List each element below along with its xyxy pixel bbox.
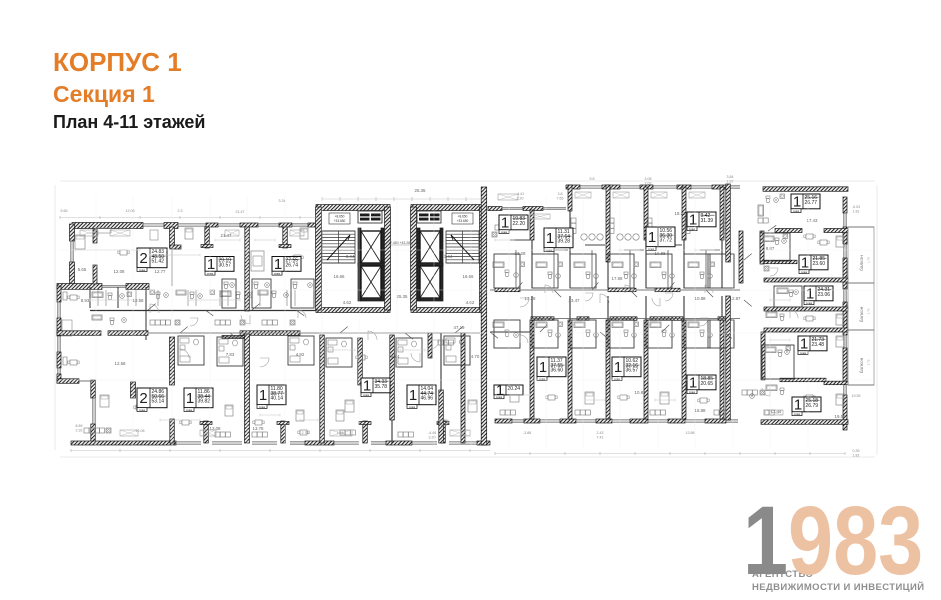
svg-text:балкон: балкон — [859, 306, 865, 322]
svg-text:22.20: 22.20 — [513, 221, 526, 227]
svg-text:9.84: 9.84 — [391, 354, 400, 359]
svg-text:15.88: 15.88 — [695, 408, 707, 413]
svg-text:этаж: этаж — [409, 405, 415, 409]
svg-text:8.93: 8.93 — [81, 298, 90, 303]
svg-text:балкон: балкон — [859, 255, 865, 271]
svg-text:-0.03: -0.03 — [852, 205, 860, 209]
svg-text:-4.48: -4.48 — [428, 431, 436, 435]
svg-text:этаж: этаж — [689, 390, 695, 394]
svg-text:23.60: 23.60 — [813, 261, 826, 267]
svg-text:1: 1 — [546, 230, 554, 247]
svg-text:10.82: 10.82 — [635, 390, 647, 395]
svg-text:+7.480 +43.280: +7.480 +43.280 — [388, 241, 412, 245]
svg-text:+8.650: +8.650 — [335, 215, 345, 219]
svg-text:этаж: этаж — [800, 351, 806, 355]
svg-text:этаж: этаж — [794, 412, 800, 416]
svg-text:37.72: 37.72 — [660, 238, 673, 244]
svg-text:12.77: 12.77 — [155, 269, 167, 274]
svg-text:12.08: 12.08 — [114, 269, 126, 274]
svg-text:18.21: 18.21 — [675, 211, 687, 216]
svg-text:5.65: 5.65 — [78, 267, 87, 272]
svg-text:этаж: этаж — [186, 408, 192, 412]
svg-text:1: 1 — [409, 387, 417, 404]
svg-text:этаж: этаж — [139, 268, 145, 272]
svg-text:3.34: 3.34 — [279, 199, 286, 203]
svg-text:4.62: 4.62 — [343, 300, 352, 305]
svg-text:13.28: 13.28 — [515, 251, 527, 256]
svg-text:35.78: 35.78 — [375, 384, 388, 390]
svg-text:3.20: 3.20 — [429, 436, 436, 440]
svg-text:1: 1 — [186, 390, 194, 407]
svg-text:4.62: 4.62 — [466, 300, 475, 305]
svg-text:30.57: 30.57 — [219, 262, 232, 268]
svg-text:19.55: 19.55 — [835, 414, 847, 419]
svg-text:12.58: 12.58 — [133, 298, 145, 303]
svg-text:2.43: 2.43 — [597, 431, 604, 435]
svg-text:этаж: этаж — [259, 405, 265, 409]
svg-text:0.35: 0.35 — [853, 449, 860, 453]
svg-text:1.48: 1.48 — [337, 431, 344, 435]
svg-text:1: 1 — [614, 359, 622, 376]
svg-text:2.3: 2.3 — [178, 209, 183, 213]
svg-text:21.47: 21.47 — [236, 210, 245, 214]
svg-text:46.96: 46.96 — [421, 396, 434, 402]
svg-text:+8.650: +8.650 — [458, 215, 468, 219]
svg-text:1.79: 1.79 — [867, 308, 871, 314]
svg-text:этаж: этаж — [648, 247, 654, 251]
svg-text:19.55: 19.55 — [852, 394, 861, 398]
svg-text:1: 1 — [259, 387, 267, 404]
svg-text:3.44: 3.44 — [444, 254, 453, 259]
svg-text:этаж: этаж — [806, 301, 812, 305]
svg-text:этаж: этаж — [274, 271, 280, 275]
svg-text:5.8: 5.8 — [590, 177, 595, 181]
svg-text:8.87: 8.87 — [766, 246, 775, 251]
svg-text:16.66: 16.66 — [463, 274, 475, 279]
svg-text:+33.650: +33.650 — [457, 219, 469, 223]
svg-text:1: 1 — [648, 229, 656, 246]
svg-text:+33.650: +33.650 — [334, 219, 346, 223]
svg-text:2.78: 2.78 — [302, 431, 309, 435]
svg-text:25.35: 25.35 — [397, 294, 409, 299]
svg-text:10.88: 10.88 — [695, 296, 707, 301]
svg-text:3.84: 3.84 — [727, 175, 734, 179]
svg-text:12.87: 12.87 — [730, 296, 742, 301]
svg-text:51.42: 51.42 — [152, 259, 165, 265]
svg-text:25.35: 25.35 — [415, 188, 427, 193]
svg-text:53.14: 53.14 — [152, 399, 165, 405]
svg-text:3.44: 3.44 — [346, 254, 355, 259]
svg-text:12.08: 12.08 — [136, 429, 145, 433]
svg-text:26.79: 26.79 — [806, 403, 819, 409]
svg-text:1.79: 1.79 — [867, 257, 871, 263]
svg-text:23.48: 23.48 — [812, 342, 825, 348]
svg-text:этаж: этаж — [539, 377, 545, 381]
svg-text:5.65: 5.65 — [61, 209, 68, 213]
svg-text:этаж: этаж — [689, 227, 695, 231]
svg-text:23.06: 23.06 — [818, 292, 831, 298]
svg-text:15.88: 15.88 — [655, 251, 667, 256]
svg-text:36.60: 36.60 — [551, 368, 564, 374]
svg-text:33.47: 33.47 — [569, 298, 581, 303]
svg-text:39.82: 39.82 — [198, 399, 211, 405]
svg-text:7.41: 7.41 — [597, 436, 604, 440]
svg-text:4.92: 4.92 — [296, 352, 305, 357]
svg-text:3.8: 3.8 — [558, 192, 563, 196]
svg-text:этаж: этаж — [614, 377, 620, 381]
svg-text:этаж: этаж — [501, 230, 507, 234]
svg-text:этаж: этаж — [139, 408, 145, 412]
svg-text:17.88: 17.88 — [612, 276, 624, 281]
svg-text:балкон: балкон — [859, 357, 865, 373]
svg-text:20.65: 20.65 — [701, 381, 714, 387]
svg-text:31.39: 31.39 — [701, 218, 714, 224]
svg-text:17.43: 17.43 — [807, 218, 819, 223]
svg-text:4.70: 4.70 — [471, 354, 480, 359]
svg-text:7.02: 7.02 — [645, 182, 652, 186]
svg-text:26.74: 26.74 — [286, 262, 299, 268]
svg-text:2: 2 — [139, 390, 147, 407]
svg-text:36.57: 36.57 — [626, 368, 639, 374]
svg-text:12.58: 12.58 — [115, 361, 127, 366]
svg-text:7.83: 7.83 — [226, 352, 235, 357]
svg-text:39.28: 39.28 — [558, 239, 571, 245]
svg-text:3.08: 3.08 — [645, 177, 652, 181]
svg-text:этаж: этаж — [801, 270, 807, 274]
svg-text:26.77: 26.77 — [805, 200, 818, 206]
svg-text:1.79: 1.79 — [867, 359, 871, 365]
svg-text:этаж: этаж — [363, 393, 369, 397]
svg-text:16.66: 16.66 — [334, 274, 346, 279]
svg-text:-3.88: -3.88 — [523, 431, 531, 435]
svg-text:1.87: 1.87 — [727, 180, 734, 184]
svg-text:1.81: 1.81 — [853, 210, 860, 214]
svg-text:2: 2 — [139, 250, 147, 267]
svg-text:этаж: этаж — [496, 395, 502, 399]
svg-text:8.89: 8.89 — [76, 424, 83, 428]
svg-text:13.88: 13.88 — [686, 431, 695, 435]
svg-text:20.24: 20.24 — [508, 386, 521, 392]
svg-text:13.28: 13.28 — [525, 296, 537, 301]
svg-text:7.65: 7.65 — [557, 197, 564, 201]
svg-text:40.14: 40.14 — [271, 396, 284, 402]
svg-text:13.78: 13.78 — [253, 426, 265, 431]
svg-text:этаж: этаж — [793, 209, 799, 213]
svg-text:2.92: 2.92 — [76, 429, 83, 433]
